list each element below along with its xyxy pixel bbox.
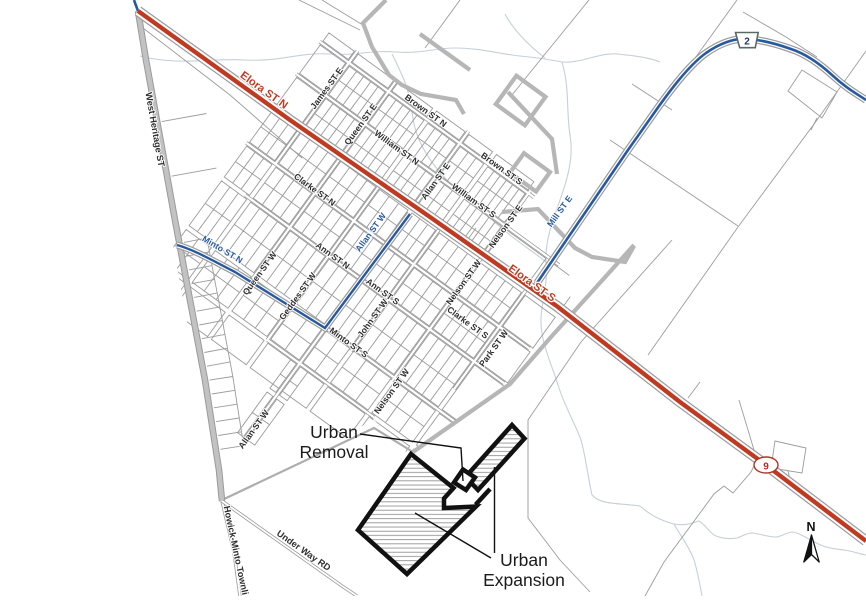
- svg-text:N: N: [806, 520, 815, 534]
- svg-text:Removal: Removal: [299, 442, 368, 462]
- svg-text:Urban: Urban: [500, 550, 548, 570]
- svg-text:Expansion: Expansion: [483, 570, 565, 590]
- svg-text:9: 9: [763, 462, 769, 473]
- svg-text:2: 2: [744, 37, 750, 48]
- svg-text:Urban: Urban: [310, 422, 358, 442]
